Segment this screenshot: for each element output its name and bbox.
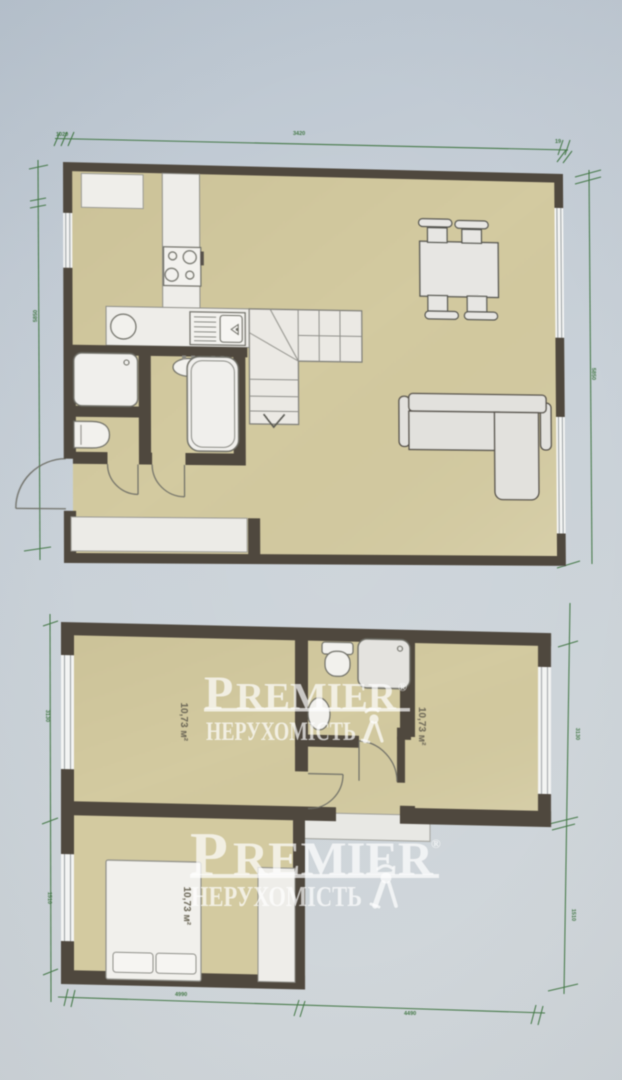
svg-text:P: P <box>190 821 228 889</box>
svg-text:НЕРУХОМІСТЬ: НЕРУХОМІСТЬ <box>191 882 362 913</box>
svg-text:®: ® <box>398 680 407 694</box>
svg-text:REMIER: REMIER <box>236 676 397 718</box>
svg-text:НЕРУХОМІСТЬ: НЕРУХОМІСТЬ <box>206 717 356 746</box>
svg-text:®: ® <box>431 836 441 851</box>
svg-text:P: P <box>204 667 233 720</box>
svg-text:REMIER: REMIER <box>233 833 434 886</box>
